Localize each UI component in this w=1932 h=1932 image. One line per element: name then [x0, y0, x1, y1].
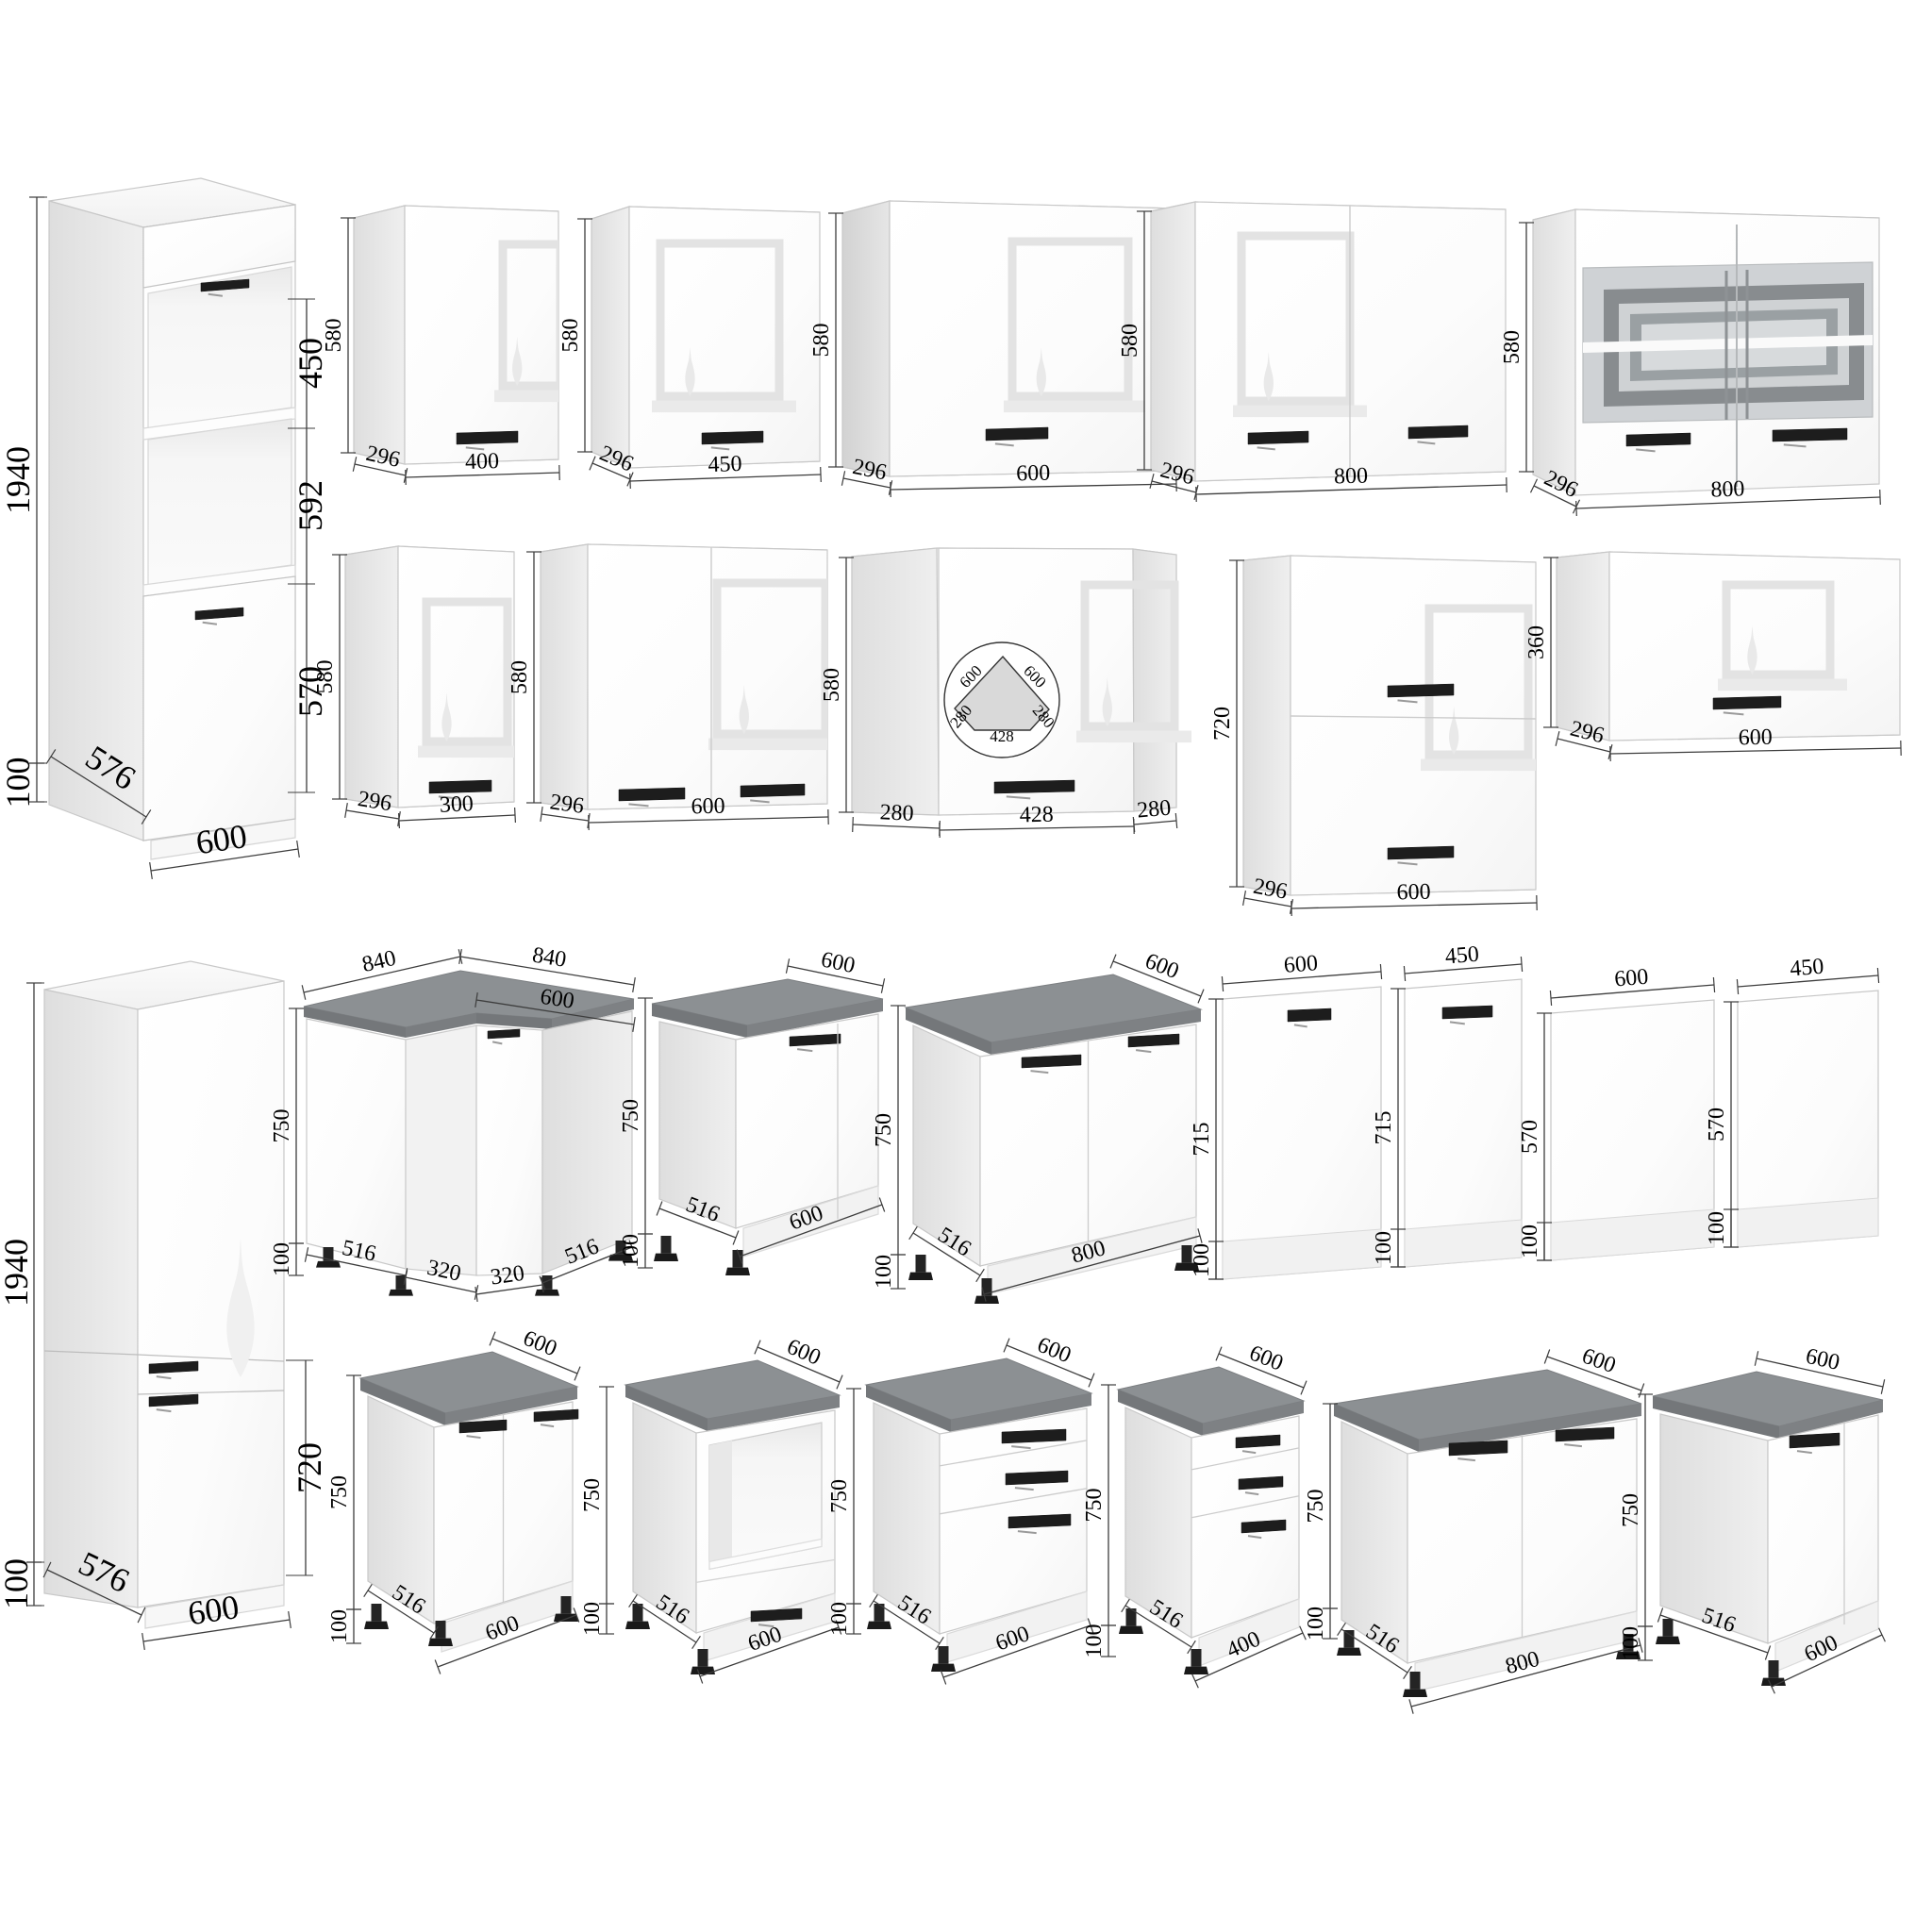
svg-text:580: 580: [1500, 330, 1524, 364]
svg-text:600: 600: [1016, 461, 1051, 487]
svg-text:580: 580: [558, 319, 583, 353]
svg-text:600: 600: [193, 817, 249, 861]
svg-text:750: 750: [827, 1479, 852, 1513]
svg-text:800: 800: [1334, 463, 1369, 489]
svg-text:280: 280: [1136, 795, 1172, 823]
svg-text:100: 100: [1372, 1231, 1396, 1265]
svg-text:750: 750: [270, 1109, 294, 1143]
svg-text:100: 100: [1518, 1224, 1542, 1258]
svg-text:1940: 1940: [0, 446, 37, 514]
svg-text:1940: 1940: [0, 1239, 35, 1307]
svg-text:450: 450: [1444, 942, 1480, 970]
svg-text:450: 450: [708, 452, 742, 477]
svg-text:100: 100: [1082, 1624, 1107, 1658]
svg-text:100: 100: [270, 1242, 294, 1276]
svg-text:428: 428: [990, 727, 1014, 745]
svg-text:100: 100: [0, 758, 37, 808]
svg-text:100: 100: [872, 1255, 896, 1289]
svg-text:600: 600: [691, 794, 725, 820]
svg-text:580: 580: [809, 324, 834, 358]
svg-text:750: 750: [580, 1478, 605, 1512]
svg-text:750: 750: [327, 1475, 352, 1509]
svg-text:720: 720: [291, 1442, 328, 1493]
svg-text:600: 600: [1283, 951, 1319, 978]
svg-text:600: 600: [1396, 880, 1431, 906]
svg-text:100: 100: [580, 1602, 605, 1636]
svg-text:280: 280: [879, 800, 914, 826]
svg-text:600: 600: [186, 1588, 241, 1632]
svg-text:570: 570: [1518, 1120, 1542, 1154]
svg-text:100: 100: [619, 1234, 643, 1268]
svg-text:580: 580: [508, 660, 532, 694]
svg-text:580: 580: [313, 660, 338, 694]
svg-text:100: 100: [327, 1609, 352, 1643]
svg-text:750: 750: [619, 1099, 643, 1133]
svg-text:750: 750: [1304, 1490, 1328, 1524]
svg-text:800: 800: [1710, 476, 1745, 502]
svg-text:100: 100: [827, 1602, 852, 1636]
svg-text:600: 600: [1739, 725, 1773, 751]
svg-text:750: 750: [872, 1113, 896, 1147]
svg-text:100: 100: [1304, 1607, 1328, 1641]
svg-text:570: 570: [1705, 1108, 1729, 1141]
svg-text:580: 580: [322, 319, 346, 353]
svg-text:400: 400: [465, 449, 500, 475]
svg-text:428: 428: [1020, 803, 1054, 828]
svg-text:580: 580: [820, 668, 844, 702]
svg-text:450: 450: [1789, 955, 1824, 982]
svg-text:100: 100: [1190, 1243, 1214, 1277]
svg-text:360: 360: [1524, 625, 1549, 659]
svg-text:720: 720: [1210, 707, 1235, 741]
svg-text:100: 100: [1705, 1211, 1729, 1245]
svg-text:300: 300: [439, 791, 474, 818]
svg-text:715: 715: [1190, 1123, 1214, 1157]
svg-text:750: 750: [1082, 1489, 1107, 1523]
svg-text:750: 750: [1619, 1493, 1643, 1527]
svg-text:600: 600: [539, 985, 576, 1014]
svg-text:580: 580: [1118, 324, 1142, 358]
svg-text:320: 320: [489, 1261, 525, 1291]
svg-text:600: 600: [1613, 965, 1649, 992]
svg-text:100: 100: [0, 1558, 35, 1609]
svg-text:592: 592: [291, 480, 329, 531]
svg-text:296: 296: [548, 790, 585, 819]
svg-text:715: 715: [1372, 1111, 1396, 1145]
svg-text:100: 100: [1619, 1626, 1643, 1660]
